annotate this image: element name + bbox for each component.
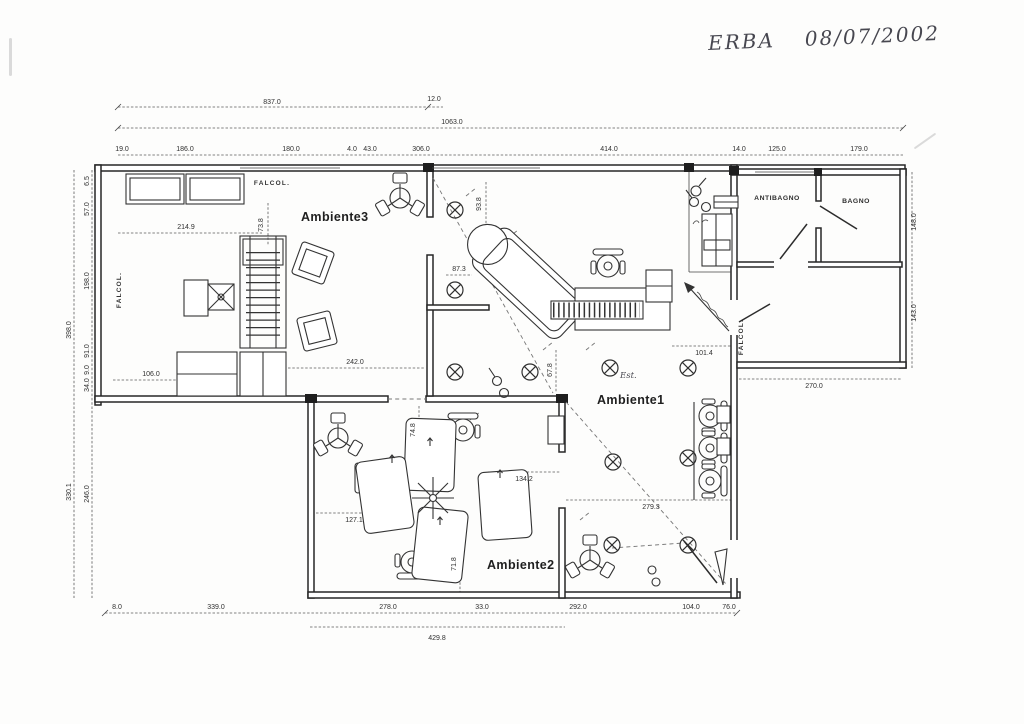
dim-label: 414.0	[600, 146, 618, 153]
light-symbol	[680, 537, 696, 553]
fan-symbol	[412, 477, 454, 519]
dim-label: 33.0	[475, 604, 489, 611]
light-symbol	[680, 360, 696, 376]
dim-label: 134.2	[515, 476, 533, 483]
switch-symbol	[648, 566, 656, 574]
door-opening-wing	[730, 300, 738, 335]
dim-label: 101.4	[695, 350, 713, 357]
handwritten-est-note: Est.	[619, 371, 637, 381]
dim-label: 67.8	[547, 363, 554, 377]
furniture-ambiente1	[455, 190, 738, 500]
room-label-bagno: BAGNO	[842, 198, 870, 205]
dim-label: 104.0	[682, 604, 700, 611]
shelf	[240, 352, 286, 396]
dim-label: 242.0	[346, 359, 364, 366]
wall-label-wing: FALCOL.	[738, 319, 745, 355]
dim-label: 57.0	[84, 202, 91, 216]
closet	[702, 214, 732, 266]
dim-label: 292.0	[569, 604, 587, 611]
door-opening-amb1	[730, 540, 738, 578]
annotation-arrow	[684, 282, 729, 331]
light-symbol	[447, 364, 463, 380]
chair-cluster	[375, 173, 425, 217]
light-symbol	[602, 360, 618, 376]
dim-label: 179.0	[850, 146, 868, 153]
bench	[177, 352, 237, 396]
armchair	[291, 241, 335, 285]
room-label-ambiente2: Ambiente2	[487, 558, 555, 572]
dim-label: 93.8	[476, 197, 483, 211]
light-symbol	[447, 282, 463, 298]
switch-symbol	[652, 578, 660, 586]
wall-label-top: FALCOL.	[254, 180, 290, 187]
chair-cluster	[313, 413, 363, 457]
dim-label: 71.8	[451, 557, 458, 571]
door-opening-antibagno	[774, 260, 808, 268]
dim-label: 837.0	[263, 99, 281, 106]
dim-label: 330.1	[66, 483, 73, 501]
dim-label: 278.0	[379, 604, 397, 611]
handwritten-note-squiggle	[697, 292, 728, 327]
dim-label: 106.0	[142, 371, 160, 378]
office-chair	[591, 249, 625, 277]
scanned-floor-plan-page: ERBA 08/07/2002	[0, 0, 1024, 724]
dim-label: 43.0	[363, 146, 377, 153]
dim-label: 214.9	[177, 224, 195, 231]
door-leaf-antibagno	[780, 224, 807, 259]
light-symbol	[447, 202, 463, 218]
dim-label: 8.0	[112, 604, 122, 611]
dim-label: 306.0	[412, 146, 430, 153]
dim-label: 279.3	[642, 504, 660, 511]
door-leaf-bagno	[820, 206, 857, 229]
dim-label: 339.0	[207, 604, 225, 611]
dim-label: 91.0	[84, 344, 91, 358]
side-chairs-row	[694, 399, 730, 500]
wardrobe	[548, 416, 564, 444]
floor-plan-svg: Ambiente3 Ambiente1 Ambiente2 ANTIBAGNO …	[0, 0, 1024, 724]
wall-label-left: FALCOL.	[116, 272, 123, 308]
office-chair	[699, 464, 727, 498]
room-label-ambiente3: Ambiente3	[301, 210, 369, 224]
sofa-daybed	[455, 212, 590, 343]
armchair	[296, 310, 337, 351]
furniture-ambiente2	[313, 413, 615, 583]
door-closer	[691, 186, 701, 196]
staircase	[240, 236, 286, 348]
dim-label: 9.0	[84, 365, 91, 375]
dim-label: 19.0	[115, 146, 129, 153]
dim-label: 198.0	[84, 272, 91, 290]
door-leaf-amb1	[684, 541, 717, 583]
dim-label: 14.0	[732, 146, 746, 153]
dim-label: 73.8	[258, 218, 265, 232]
furniture-ambiente3	[126, 173, 425, 396]
dim-label: 125.0	[768, 146, 786, 153]
dim-label: 12.0	[427, 96, 441, 103]
dim-label: 143.0	[911, 304, 918, 322]
dim-label: 4.0	[347, 146, 357, 153]
room-label-ambiente1: Ambiente1	[597, 393, 665, 407]
dim-label: 74.8	[410, 423, 417, 437]
dim-label: 429.8	[428, 635, 446, 642]
wall-fixtures	[686, 190, 738, 212]
room-label-antibagno: ANTIBAGNO	[754, 195, 800, 202]
desk-with-chair	[184, 280, 234, 316]
dim-label: 6.5	[84, 176, 91, 186]
dim-label: 180.0	[282, 146, 300, 153]
light-symbol	[522, 364, 538, 380]
dim-label: 34.0	[84, 378, 91, 392]
door-panel-corner	[715, 549, 727, 585]
dim-label: 87.3	[452, 266, 466, 273]
dim-label: 1063.0	[441, 119, 463, 126]
dim-label: 186.0	[176, 146, 194, 153]
dim-label: 148.0	[911, 213, 918, 231]
dim-label: 398.0	[66, 321, 73, 339]
switch-symbol	[493, 377, 502, 386]
dim-label: 127.1	[345, 517, 363, 524]
light-symbol	[604, 537, 620, 553]
chair-cluster	[565, 535, 615, 579]
dim-label: 246.0	[84, 485, 91, 503]
dim-label: 270.0	[805, 383, 823, 390]
dim-label: 76.0	[722, 604, 736, 611]
